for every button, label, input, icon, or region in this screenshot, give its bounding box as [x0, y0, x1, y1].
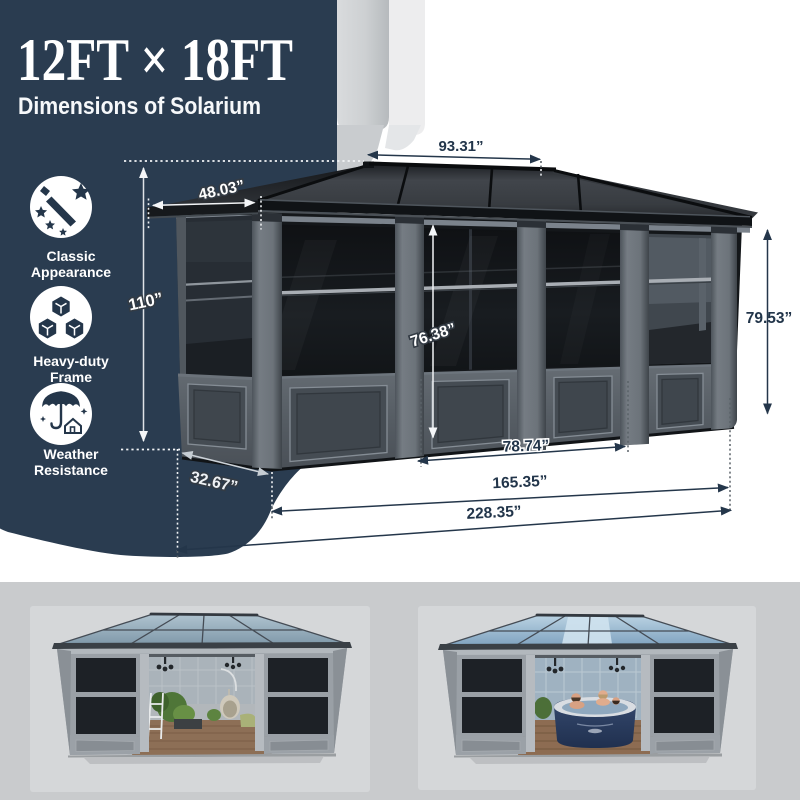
svg-text:Classic: Classic — [46, 248, 95, 264]
svg-text:Dimensions of Solarium: Dimensions of Solarium — [18, 93, 261, 120]
svg-text:165.35”: 165.35” — [492, 473, 548, 492]
svg-text:Appearance: Appearance — [31, 264, 111, 280]
svg-text:Weather: Weather — [44, 446, 100, 462]
svg-text:93.31”: 93.31” — [438, 138, 483, 155]
svg-text:Resistance: Resistance — [34, 462, 108, 478]
svg-text:79.53”: 79.53” — [746, 310, 793, 327]
svg-text:Frame: Frame — [50, 369, 92, 385]
svg-text:Heavy-duty: Heavy-duty — [33, 353, 109, 369]
svg-text:228.35”: 228.35” — [466, 503, 522, 523]
svg-text:78.74”: 78.74” — [502, 437, 549, 456]
svg-text:12FT × 18FT: 12FT × 18FT — [17, 27, 293, 93]
